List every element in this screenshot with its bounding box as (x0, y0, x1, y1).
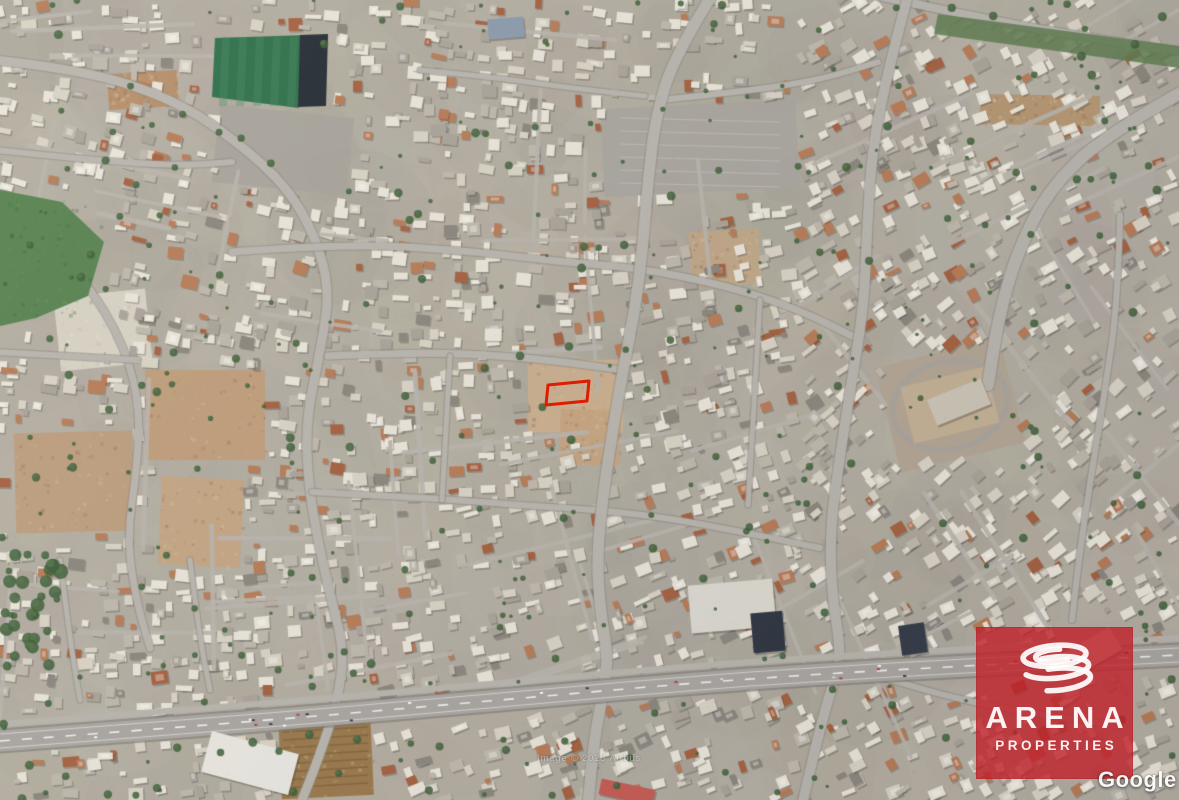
arena-rings-icon (1003, 640, 1107, 700)
imagery-attribution: Image © 2023 Airbus (537, 753, 641, 764)
arena-properties-watermark: ARENA PROPERTIES (976, 627, 1133, 779)
google-earth-viewport: ARENA PROPERTIES Image © 2023 Airbus Goo… (0, 0, 1179, 800)
logo-subtitle: PROPERTIES (992, 739, 1118, 753)
logo-title: ARENA (978, 702, 1130, 733)
google-watermark: Google (1098, 767, 1177, 793)
